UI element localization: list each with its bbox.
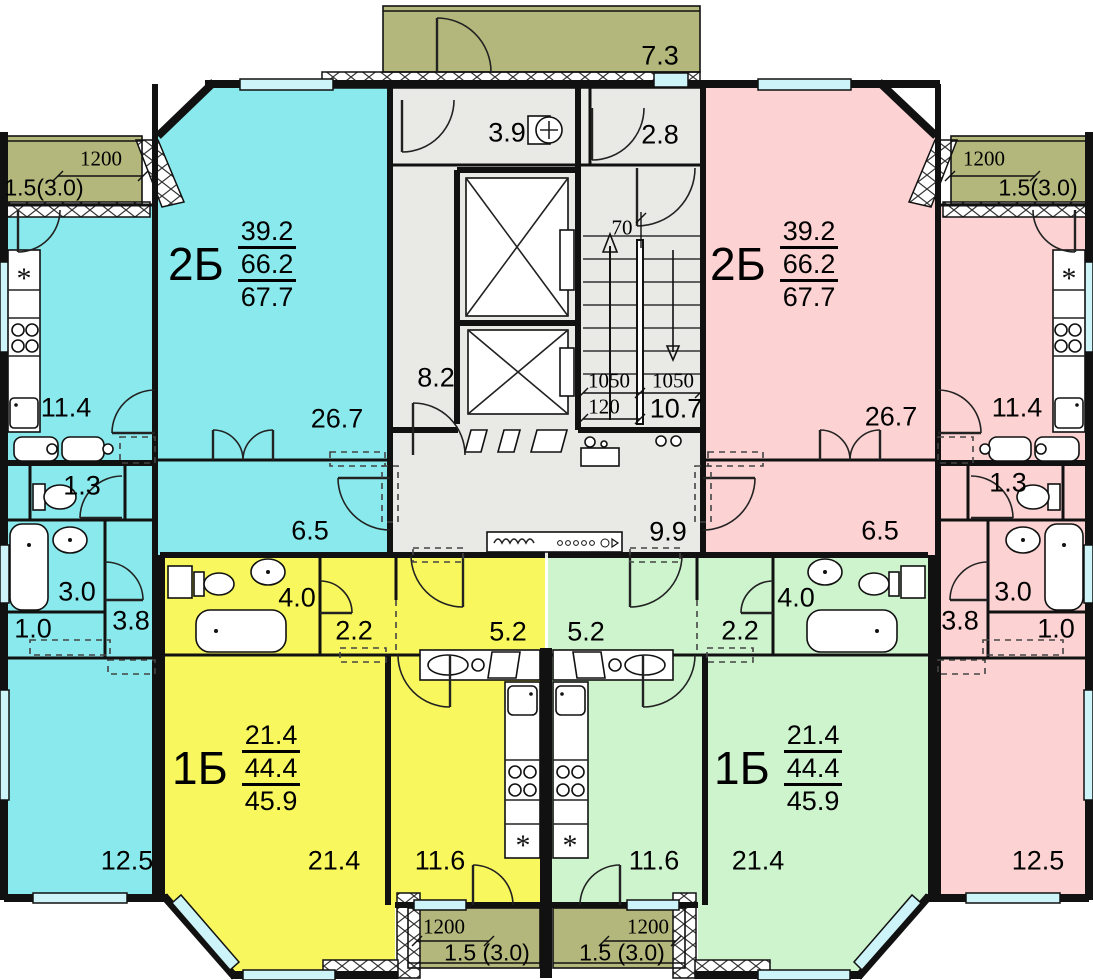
dimension-label: 70 [612, 216, 633, 241]
balcony-area-label: 1.5(3.0) [4, 175, 83, 202]
total-area-value: 66.2 [780, 249, 839, 282]
room-area-label: 11.4 [41, 393, 92, 424]
room-area-label: 3.8 [112, 606, 150, 637]
balcony-dim-label: 1200 [963, 147, 1005, 172]
elevator-door-slot-small [560, 348, 574, 396]
living-area-value: 21.4 [784, 720, 843, 753]
room-area-label: 1.3 [63, 471, 101, 502]
room-area-label: 1.0 [1037, 614, 1075, 645]
apartment-tag-right-1b: 1Б 21.4 44.4 45.9 [714, 720, 842, 816]
room-area-label: 5.2 [489, 617, 527, 648]
room-area-label: 12.5 [1012, 846, 1065, 877]
stair-stringer [637, 240, 643, 424]
floor-plan-drawing: * * * * [0, 0, 1093, 980]
total-with-summer-value: 45.9 [784, 786, 843, 816]
apartment-tag-left-2b: 2Б 39.2 66.2 67.7 [168, 216, 296, 312]
room-area-label: 3.8 [941, 606, 979, 637]
apartment-areas: 21.4 44.4 45.9 [242, 720, 301, 816]
room-area-label: 8.2 [417, 363, 455, 394]
apartment-type-label: 2Б [168, 241, 224, 287]
dimension-label: 120 [588, 395, 620, 420]
apartment-type-label: 1Б [714, 745, 770, 791]
room-area-label: 3.0 [994, 577, 1032, 608]
apartment-tag-left-1b: 1Б 21.4 44.4 45.9 [172, 720, 300, 816]
apartment-type-label: 2Б [710, 241, 766, 287]
total-with-summer-value: 67.7 [780, 282, 839, 312]
room-area-label: 2.2 [721, 616, 759, 647]
balcony-area-label: 1.5(3.0) [998, 175, 1077, 202]
total-area-value: 44.4 [242, 753, 301, 786]
room-area-label: 21.4 [308, 846, 361, 877]
total-area-value: 44.4 [784, 753, 843, 786]
room-area-label: 3.0 [58, 577, 96, 608]
dimension-label: 1050 [652, 369, 694, 394]
room-area-label: 10.7 [650, 394, 703, 425]
room-area-label: 4.0 [278, 583, 316, 614]
fridge-icon: * [1062, 262, 1077, 295]
fridge-icon: * [563, 829, 578, 862]
balcony-dim-label: 1200 [423, 915, 465, 940]
apartment-areas: 39.2 66.2 67.7 [780, 216, 839, 312]
living-area-value: 21.4 [242, 720, 301, 753]
dimension-label: 1050 [588, 369, 630, 394]
apartment-areas: 21.4 44.4 45.9 [784, 720, 843, 816]
apartment-type-label: 1Б [172, 745, 228, 791]
fridge-icon: * [17, 262, 32, 295]
floor-plan: * * * * 7.3 3.9 2.8 8.2 10.7 9.9 1050 10… [0, 0, 1093, 980]
total-with-summer-value: 67.7 [238, 282, 297, 312]
room-area-label: 12.5 [101, 846, 154, 877]
room-area-label: 6.5 [291, 516, 329, 547]
room-area-label: 4.0 [777, 583, 815, 614]
room-area-label: 3.9 [488, 118, 526, 149]
room-area-label: 2.8 [641, 120, 679, 151]
room-area-label: 1.0 [14, 614, 52, 645]
room-area-label: 11.6 [415, 846, 466, 877]
fridge-icon: * [516, 829, 531, 862]
room-area-label: 5.2 [567, 617, 605, 648]
ceiling-light-icon [528, 116, 562, 144]
balcony-dim-label: 1200 [627, 915, 669, 940]
total-with-summer-value: 45.9 [242, 786, 301, 816]
room-area-label: 11.6 [629, 846, 680, 877]
total-area-value: 66.2 [238, 249, 297, 282]
room-area-label: 26.7 [865, 402, 918, 433]
room-area-label: 2.2 [335, 616, 373, 647]
room-area-label: 11.4 [992, 393, 1043, 424]
room-area-label: 9.9 [649, 517, 687, 548]
room-area-label: 1.3 [989, 468, 1027, 499]
living-area-value: 39.2 [780, 216, 839, 249]
balcony-dim-label: 1200 [80, 147, 122, 172]
living-area-value: 39.2 [238, 216, 297, 249]
apartment-areas: 39.2 66.2 67.7 [238, 216, 297, 312]
balcony-area-label: 7.3 [641, 41, 679, 72]
room-area-label: 6.5 [861, 516, 899, 547]
corridor-equipment-strip [487, 532, 622, 552]
elevator-door-slot-large [560, 230, 574, 290]
balcony-area-label: 1.5 (3.0) [444, 940, 530, 967]
room-area-label: 21.4 [732, 846, 785, 877]
apartment-tag-right-2b: 2Б 39.2 66.2 67.7 [710, 216, 838, 312]
balcony-area-label: 1.5 (3.0) [579, 940, 665, 967]
room-area-label: 26.7 [311, 404, 364, 435]
